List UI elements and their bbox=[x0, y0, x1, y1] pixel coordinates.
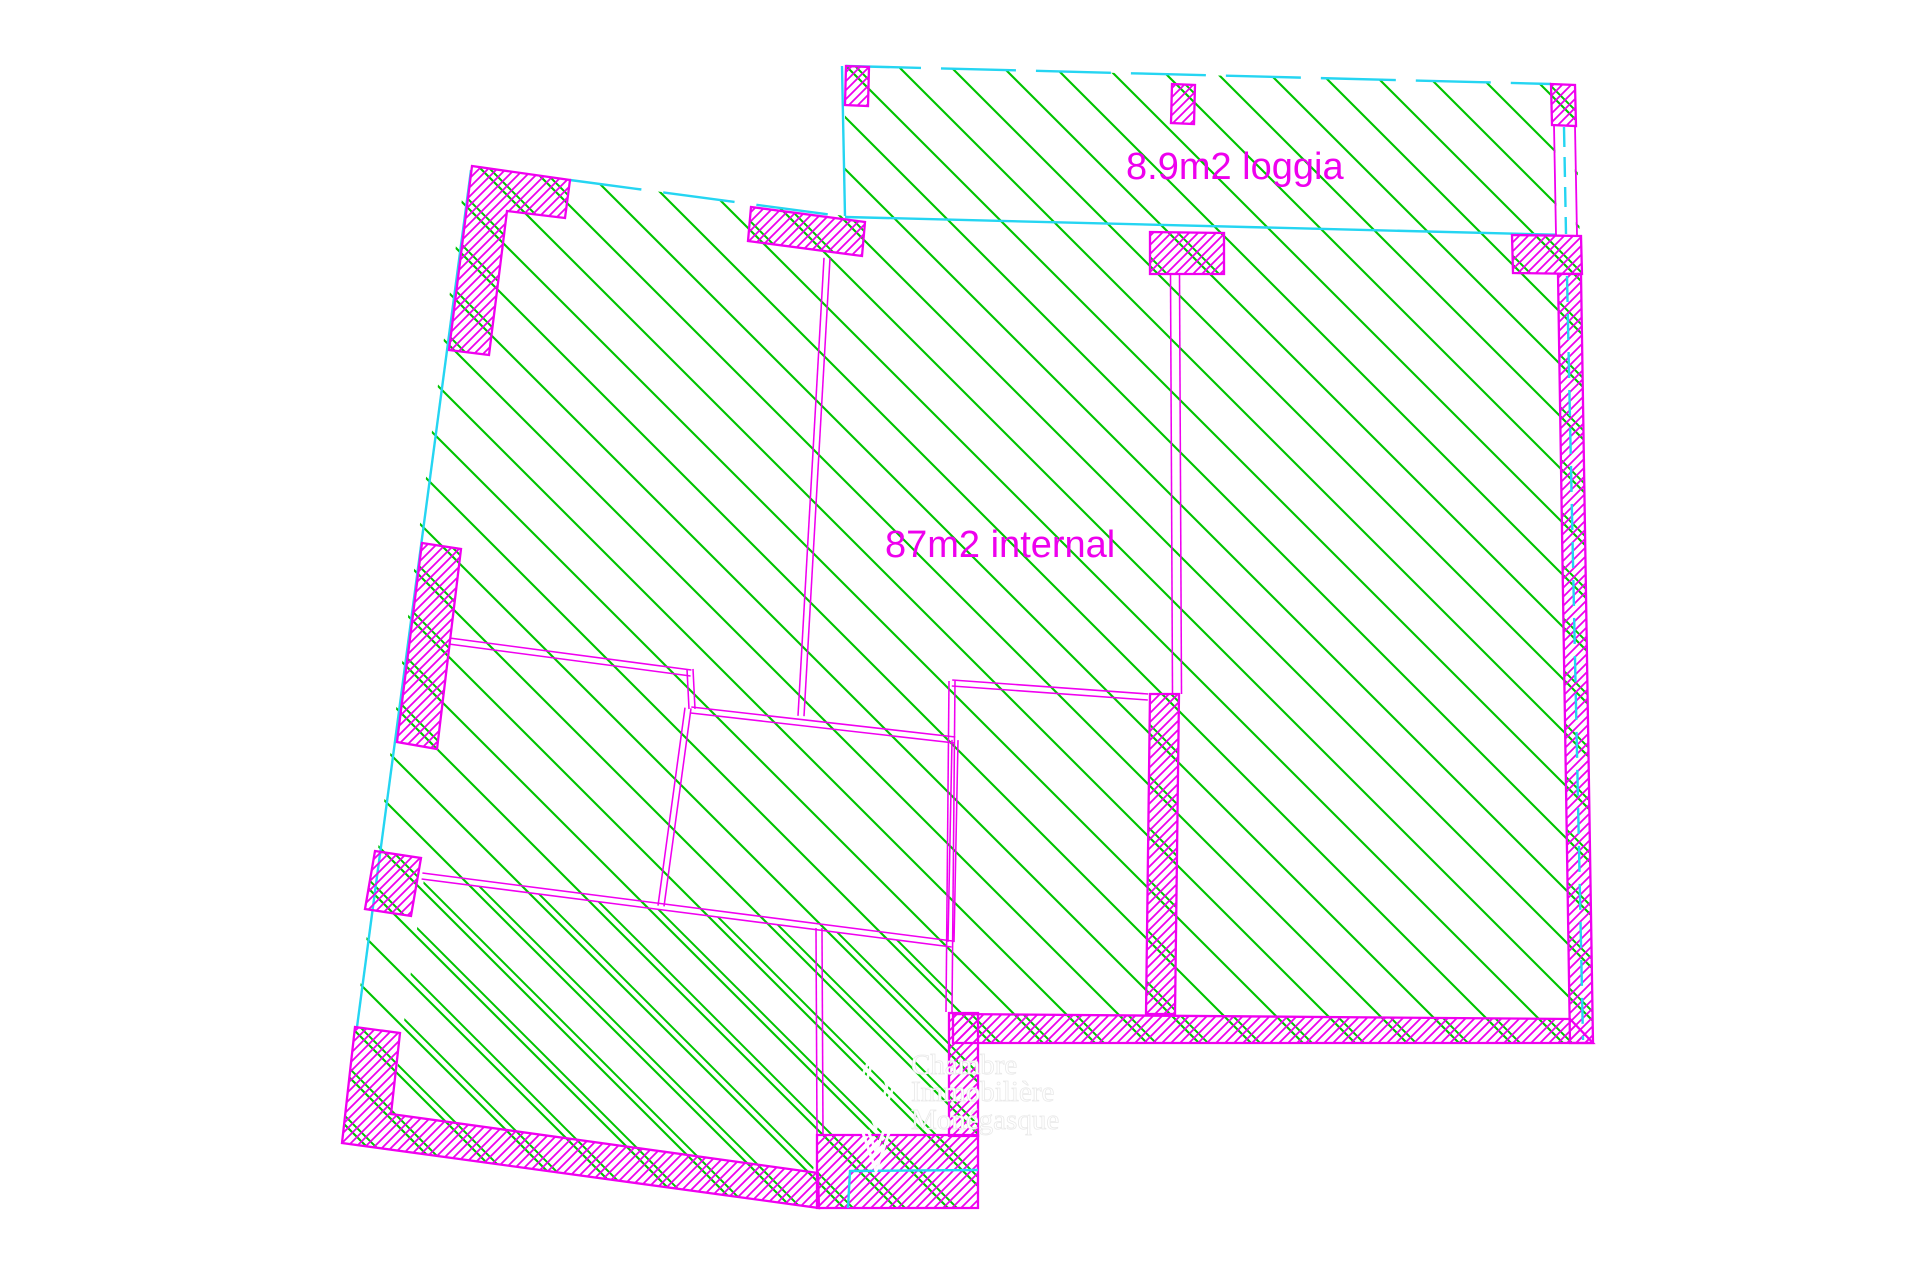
svg-text:8.9m2 loggia: 8.9m2 loggia bbox=[1126, 146, 1344, 188]
svg-text:Monégasque: Monégasque bbox=[911, 1104, 1059, 1136]
svg-text:87m2 internal: 87m2 internal bbox=[885, 524, 1115, 566]
